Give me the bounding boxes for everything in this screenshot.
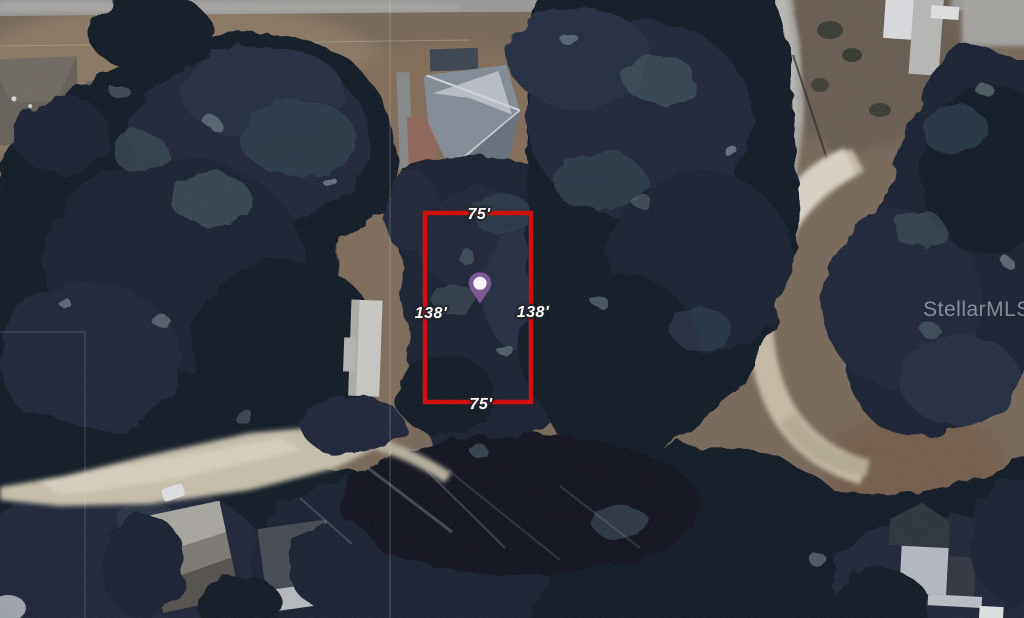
dimension-label-bottom: 75' [469, 396, 492, 414]
aerial-listing-photo: 75' 138' 138' 75' StellarMLS [0, 0, 1024, 618]
dimension-label-top: 75' [467, 206, 490, 224]
dimension-label-left: 138' [415, 305, 448, 323]
photo-grain [0, 0, 1024, 618]
stellar-mls-watermark: StellarMLS [923, 298, 1024, 322]
satellite-imagery [0, 0, 1024, 618]
dimension-label-right: 138' [517, 304, 550, 322]
